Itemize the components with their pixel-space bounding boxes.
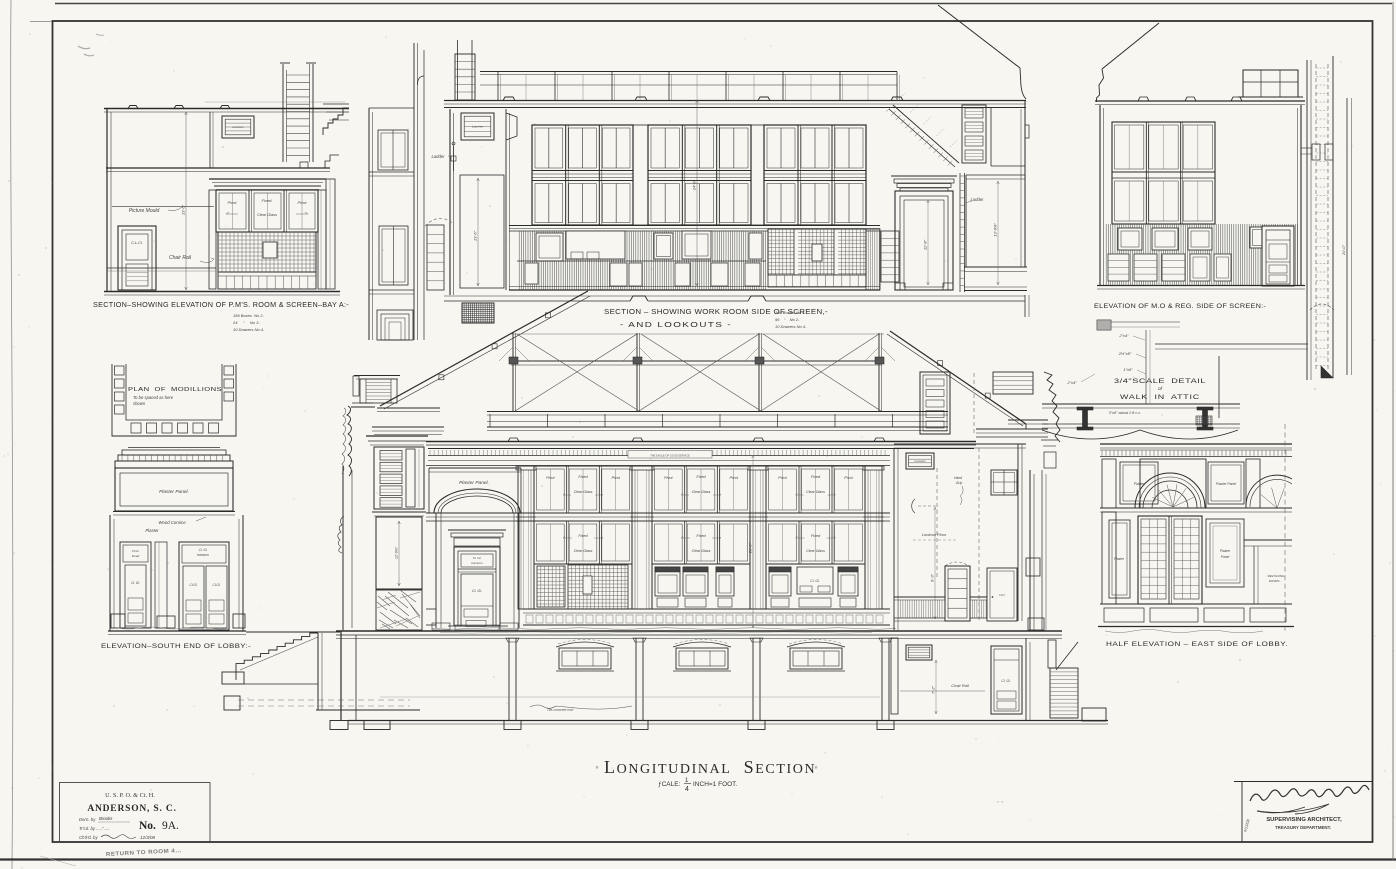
- svg-text:Fixed: Fixed: [132, 554, 140, 558]
- svg-text:No.: No.: [139, 820, 156, 832]
- svg-text:Dw'n. by: Dw'n. by: [79, 817, 96, 822]
- svg-text:Clear Glass: Clear Glass: [806, 549, 825, 553]
- svg-text:4: 4: [685, 786, 689, 793]
- svg-text:ELEVATION–SOUTH END OF LOBBY:-: ELEVATION–SOUTH END OF LOBBY:-: [101, 643, 251, 650]
- svg-text:Pivot: Pivot: [546, 476, 555, 480]
- svg-text:Fixed: Fixed: [578, 475, 588, 479]
- svg-text:12/3/08: 12/3/08: [140, 835, 156, 840]
- svg-text:Cl.Gl.: Cl.Gl.: [132, 549, 140, 553]
- svg-text:Pivot: Pivot: [729, 476, 738, 480]
- svg-text:Cl. Gl.: Cl. Gl.: [472, 589, 482, 593]
- svg-text:Pivot: Pivot: [611, 476, 620, 480]
- svg-text:20'-0": 20'-0": [748, 542, 753, 554]
- svg-text:Pivot: Pivot: [778, 476, 787, 480]
- svg-text:24 “ No 3-: 24 “ No 3-: [232, 320, 260, 325]
- svg-text:13'-6": 13'-6": [473, 230, 478, 241]
- svg-text:Hand: Hand: [954, 476, 962, 480]
- svg-text:Clear Glass: Clear Glass: [692, 549, 711, 553]
- svg-text:INCH=1 FOOT.: INCH=1 FOOT.: [693, 781, 737, 788]
- svg-text:HALF ELEVATION – EAST SIDE OF: HALF ELEVATION – EAST SIDE OF LOBBY.: [1106, 641, 1288, 648]
- svg-text:186 Boxes No 2-: 186 Boxes No 2-: [233, 313, 265, 318]
- svg-text:2"x4": 2"x4": [1066, 380, 1077, 385]
- svg-text:Cl.Gl.: Cl.Gl.: [190, 583, 198, 587]
- svg-text:104 Boxes No 1-: 104 Boxes No 1-: [775, 310, 807, 315]
- svg-text:Pivot: Pivot: [664, 476, 673, 480]
- svg-text:SECTION–SHOWING ELEVATION OF P: SECTION–SHOWING ELEVATION OF P.M'S. ROOM…: [93, 300, 349, 309]
- svg-text:Plaster Panel.: Plaster Panel.: [459, 480, 489, 486]
- svg-text:◦: ◦: [595, 762, 598, 772]
- svg-text:transom: transom: [471, 561, 483, 565]
- svg-text:13'-6": 13'-6": [181, 204, 186, 215]
- svg-text:ANDERSON, S. C.: ANDERSON, S. C.: [87, 804, 176, 814]
- svg-text:Clear Glass: Clear Glass: [574, 490, 593, 494]
- svg-text:Cl. Gl.: Cl. Gl.: [1001, 679, 1010, 683]
- svg-text:Panel: Panel: [1221, 555, 1230, 559]
- svg-text:ƒCALE:: ƒCALE:: [658, 781, 681, 788]
- svg-text:Pivot: Pivot: [228, 200, 238, 205]
- svg-text:Tile-concrete roof: Tile-concrete roof: [547, 708, 574, 712]
- svg-text:Pivot: Pivot: [298, 200, 308, 205]
- svg-text:Clear Glass: Clear Glass: [806, 490, 825, 494]
- svg-text:Wood Cornice: Wood Cornice: [158, 520, 186, 525]
- svg-text:Clear Glass: Clear Glass: [257, 213, 277, 217]
- svg-text:Brooks: Brooks: [99, 816, 113, 821]
- svg-text:7'-2": 7'-2": [931, 685, 936, 694]
- svg-text:Plaster: Plaster: [145, 528, 159, 533]
- svg-text:Cl.Gl.: Cl.Gl.: [213, 583, 221, 587]
- svg-text:Fixed: Fixed: [696, 475, 706, 479]
- svg-text:9'-3": 9'-3": [930, 573, 935, 582]
- svg-text:Cl. Gl.: Cl. Gl.: [131, 581, 140, 585]
- svg-text:10 Drawers No 4-: 10 Drawers No 4-: [775, 324, 807, 329]
- svg-text:Ladder: Ladder: [431, 154, 445, 159]
- svg-text:9A.: 9A.: [162, 820, 179, 832]
- svg-text:1"x6": 1"x6": [1123, 367, 1133, 372]
- svg-text:ELEVATION OF M.O & REG. SIDE O: ELEVATION OF M.O & REG. SIDE OF SCREEN:-: [1094, 303, 1266, 310]
- svg-text:Louvres: Louvres: [472, 125, 483, 129]
- svg-text:Fixed: Fixed: [696, 534, 706, 538]
- svg-text:Plaster: Plaster: [1220, 549, 1231, 553]
- svg-text:Fixed: Fixed: [578, 534, 588, 538]
- svg-text:Cl. Gl.: Cl. Gl.: [810, 579, 819, 583]
- svg-text:Louvres: Louvres: [914, 459, 925, 463]
- svg-text:96 “ No 2-: 96 “ No 2-: [775, 317, 800, 322]
- svg-text:Chair Rail: Chair Rail: [169, 255, 192, 261]
- svg-text:13'-6⅝": 13'-6⅝": [993, 223, 998, 237]
- svg-text:20'-0": 20'-0": [1341, 244, 1346, 256]
- svg-text:THE EAGLE OF GOOD SERVICE: THE EAGLE OF GOOD SERVICE: [650, 453, 690, 457]
- svg-text:Cl. Gl.: Cl. Gl.: [199, 548, 208, 552]
- svg-text:Clear Glass: Clear Glass: [692, 490, 711, 494]
- svg-text:WALK IN ATTIC: WALK IN ATTIC: [1120, 394, 1200, 401]
- svg-text:Lookout Floor: Lookout Floor: [922, 532, 947, 537]
- svg-text:To be spaced as here: To be spaced as here: [133, 395, 174, 400]
- svg-text:10 Drawers No 4-: 10 Drawers No 4-: [233, 327, 265, 332]
- svg-text:C.L.Cl.: C.L.Cl.: [131, 241, 143, 245]
- svg-text:≈ ≈: ≈ ≈: [997, 799, 1004, 804]
- svg-text:3/4"SCALE DETAIL: 3/4"SCALE DETAIL: [1114, 378, 1206, 385]
- svg-text:Chair Rail: Chair Rail: [951, 683, 969, 688]
- svg-text:transom: transom: [197, 553, 209, 557]
- svg-text:Fixed.: Fixed.: [262, 198, 273, 203]
- svg-text:Tr'cd. by .....“.....: Tr'cd. by .....“.....: [79, 826, 110, 831]
- svg-text:Picture Mould: Picture Mould: [129, 208, 160, 214]
- svg-text:- AND LOOKOUTS -: - AND LOOKOUTS -: [620, 322, 732, 329]
- svg-text:TREASURY DEPARTMENT.: TREASURY DEPARTMENT.: [1275, 825, 1331, 830]
- svg-text:◦: ◦: [814, 762, 817, 772]
- svg-text:Fixed: Fixed: [811, 534, 821, 538]
- svg-text:1913: 1913: [999, 593, 1005, 597]
- svg-text:Grip: Grip: [956, 481, 963, 485]
- svg-text:DOORS -: DOORS -: [1269, 579, 1281, 583]
- svg-text:Plaster Panel: Plaster Panel: [1216, 482, 1236, 486]
- svg-text:12'-8": 12'-8": [923, 239, 928, 250]
- svg-text:Clear Glass: Clear Glass: [574, 549, 593, 553]
- svg-text:24'-8": 24'-8": [692, 179, 697, 191]
- svg-text:Cl. Gl.: Cl. Gl.: [473, 556, 482, 560]
- svg-text:SUPERVISING ARCHITECT,: SUPERVISING ARCHITECT,: [1266, 817, 1342, 823]
- svg-text:Plaster Panel.: Plaster Panel.: [159, 489, 189, 495]
- svg-text:PLAN OF MODILLIONS: PLAN OF MODILLIONS: [128, 387, 222, 393]
- svg-text:2"x4": 2"x4": [1118, 333, 1129, 338]
- svg-text:Fixed: Fixed: [811, 475, 821, 479]
- svg-text:shown: shown: [133, 401, 146, 406]
- svg-text:U. S. P. O. & Ct. H.: U. S. P. O. & Ct. H.: [105, 792, 155, 799]
- svg-text:2½"x8": 2½"x8": [1118, 351, 1132, 356]
- svg-text:REVOLVING: REVOLVING: [1268, 574, 1285, 578]
- svg-text:Plaster: Plaster: [1114, 557, 1125, 561]
- svg-text:Pivot: Pivot: [844, 476, 853, 480]
- svg-text:Louvres: Louvres: [232, 125, 243, 129]
- svg-text:Ch'k'd. by: Ch'k'd. by: [79, 835, 98, 840]
- svg-text:12'-9⅛": 12'-9⅛": [395, 546, 399, 559]
- svg-text:3"x6" about 2 ft c.c.: 3"x6" about 2 ft c.c.: [1109, 411, 1142, 415]
- svg-text:Ladder: Ladder: [970, 197, 984, 202]
